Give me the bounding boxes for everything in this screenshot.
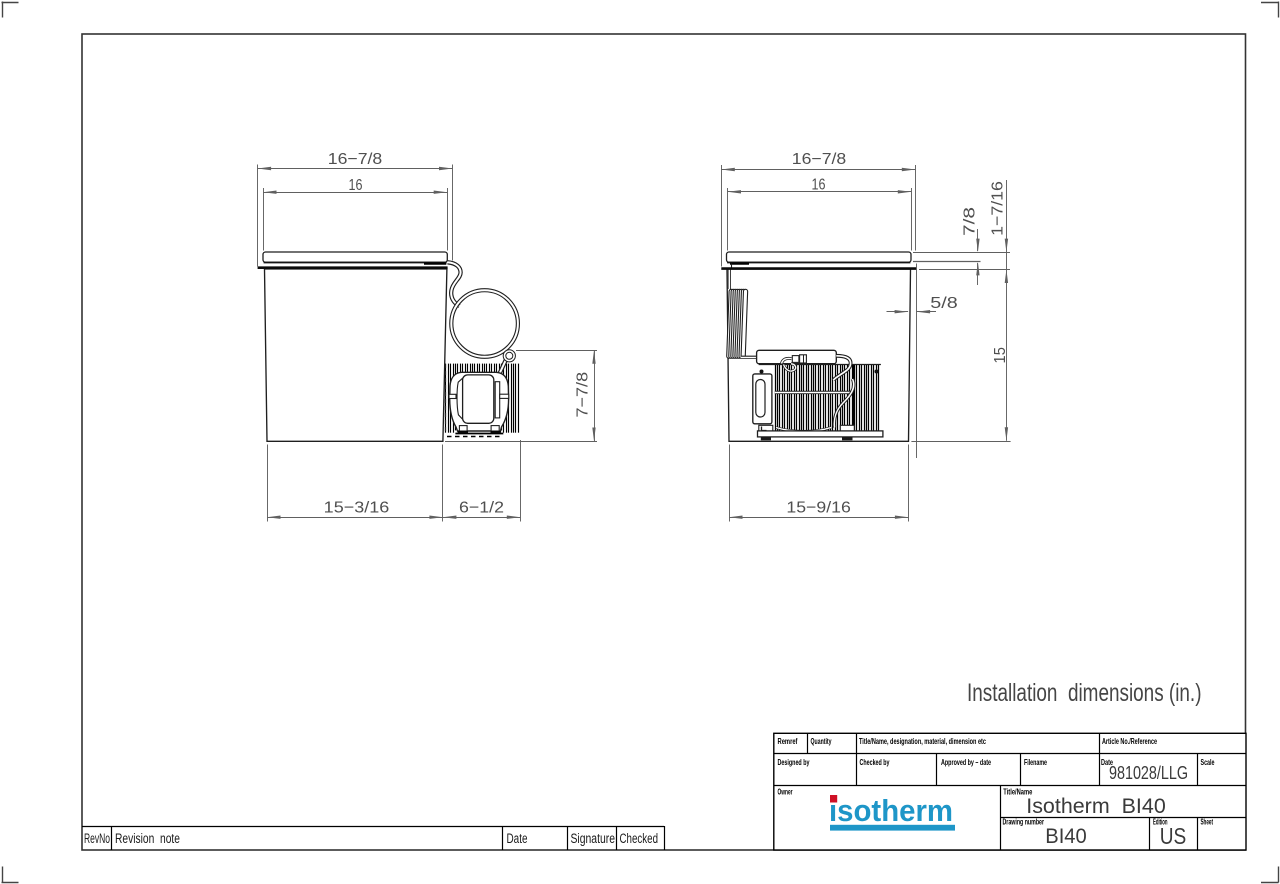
- svg-text:Checked by: Checked by: [860, 758, 890, 767]
- svg-text:16−7/8: 16−7/8: [792, 151, 847, 168]
- svg-text:RevNo: RevNo: [84, 831, 110, 846]
- svg-text:6−1/2: 6−1/2: [459, 500, 504, 517]
- svg-text:Approved by – date: Approved by – date: [941, 758, 991, 767]
- svg-text:7−7/8: 7−7/8: [575, 372, 592, 418]
- svg-text:BI40: BI40: [1045, 825, 1087, 848]
- svg-text:15−9/16: 15−9/16: [786, 500, 851, 517]
- svg-text:16: 16: [349, 177, 363, 194]
- svg-text:Owner: Owner: [778, 788, 793, 797]
- svg-text:7/8: 7/8: [962, 207, 979, 236]
- svg-text:Date: Date: [507, 831, 528, 846]
- svg-text:Title/Name, designation, mater: Title/Name, designation, material, dimen…: [859, 737, 986, 746]
- svg-text:Checked: Checked: [620, 831, 659, 846]
- svg-text:Filename: Filename: [1024, 758, 1047, 767]
- svg-text:Drawing number: Drawing number: [1003, 818, 1045, 827]
- svg-text:981028/LLG: 981028/LLG: [1109, 763, 1188, 783]
- svg-text:16: 16: [812, 177, 826, 194]
- svg-text:Scale: Scale: [1201, 758, 1215, 767]
- svg-text:Signature: Signature: [571, 831, 616, 846]
- svg-text:15: 15: [992, 347, 1009, 363]
- svg-text:Sheet: Sheet: [1201, 818, 1214, 827]
- svg-text:Designed by: Designed by: [778, 758, 810, 767]
- svg-text:Installation dimensions (in.): Installation dimensions (in.): [967, 679, 1202, 707]
- svg-text:1−7/16: 1−7/16: [990, 181, 1007, 236]
- svg-text:Revision note: Revision note: [115, 831, 180, 846]
- svg-text:Quantity: Quantity: [811, 737, 832, 746]
- svg-text:Article No./Reference: Article No./Reference: [1102, 737, 1157, 746]
- svg-text:15−3/16: 15−3/16: [324, 500, 390, 517]
- svg-text:16−7/8: 16−7/8: [328, 151, 383, 168]
- svg-text:US: US: [1160, 823, 1187, 849]
- svg-text:isotherm: isotherm: [829, 793, 953, 828]
- svg-text:5/8: 5/8: [930, 295, 958, 312]
- svg-text:Isotherm BI40: Isotherm BI40: [1026, 795, 1166, 818]
- svg-text:Remref: Remref: [778, 737, 798, 746]
